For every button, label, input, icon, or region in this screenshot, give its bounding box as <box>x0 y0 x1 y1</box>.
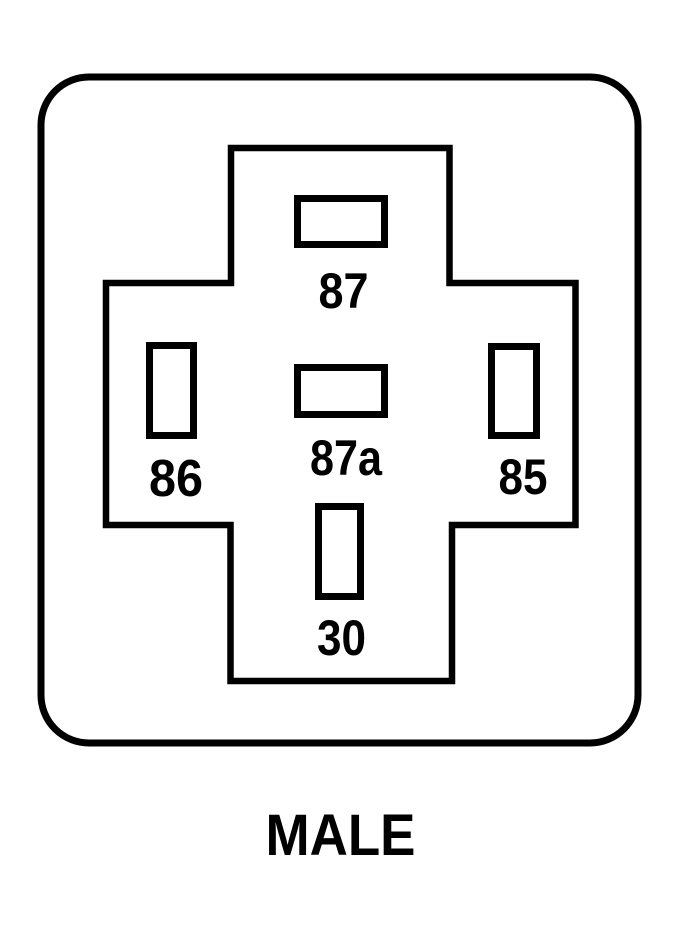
svg-text:87: 87 <box>319 263 369 319</box>
svg-text:85: 85 <box>499 449 548 505</box>
svg-text:87a: 87a <box>310 430 383 486</box>
svg-text:MALE: MALE <box>266 803 416 868</box>
svg-text:86: 86 <box>149 450 203 508</box>
svg-text:30: 30 <box>317 610 366 666</box>
